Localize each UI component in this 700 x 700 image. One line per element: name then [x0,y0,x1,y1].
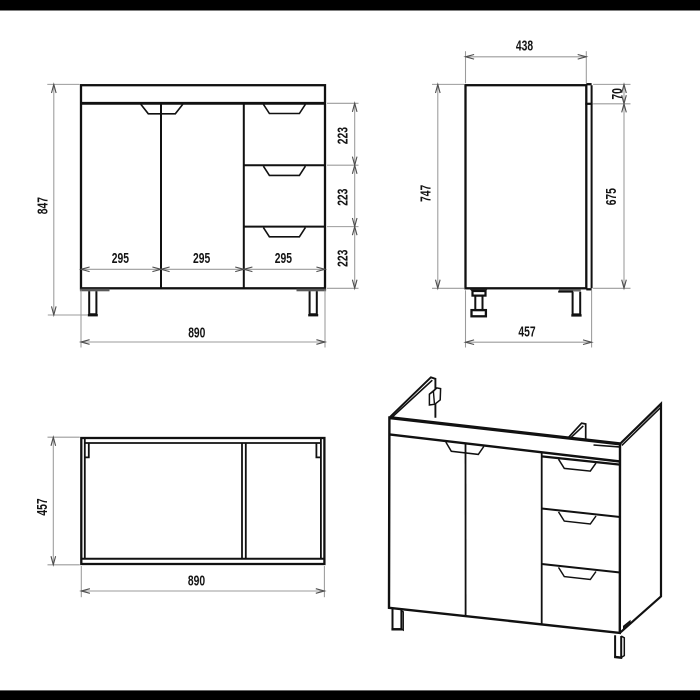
svg-text:223: 223 [336,250,352,267]
svg-text:890: 890 [188,574,205,590]
svg-text:295: 295 [275,251,292,267]
svg-text:457: 457 [35,498,51,515]
svg-text:223: 223 [336,189,352,206]
svg-text:223: 223 [336,127,352,144]
svg-text:438: 438 [516,39,533,55]
svg-text:890: 890 [188,325,205,341]
svg-text:295: 295 [193,251,210,267]
svg-text:675: 675 [604,188,620,205]
svg-text:847: 847 [35,197,51,214]
svg-text:457: 457 [518,324,535,340]
svg-text:295: 295 [112,251,129,267]
svg-text:70: 70 [610,88,626,100]
svg-text:747: 747 [418,185,434,202]
